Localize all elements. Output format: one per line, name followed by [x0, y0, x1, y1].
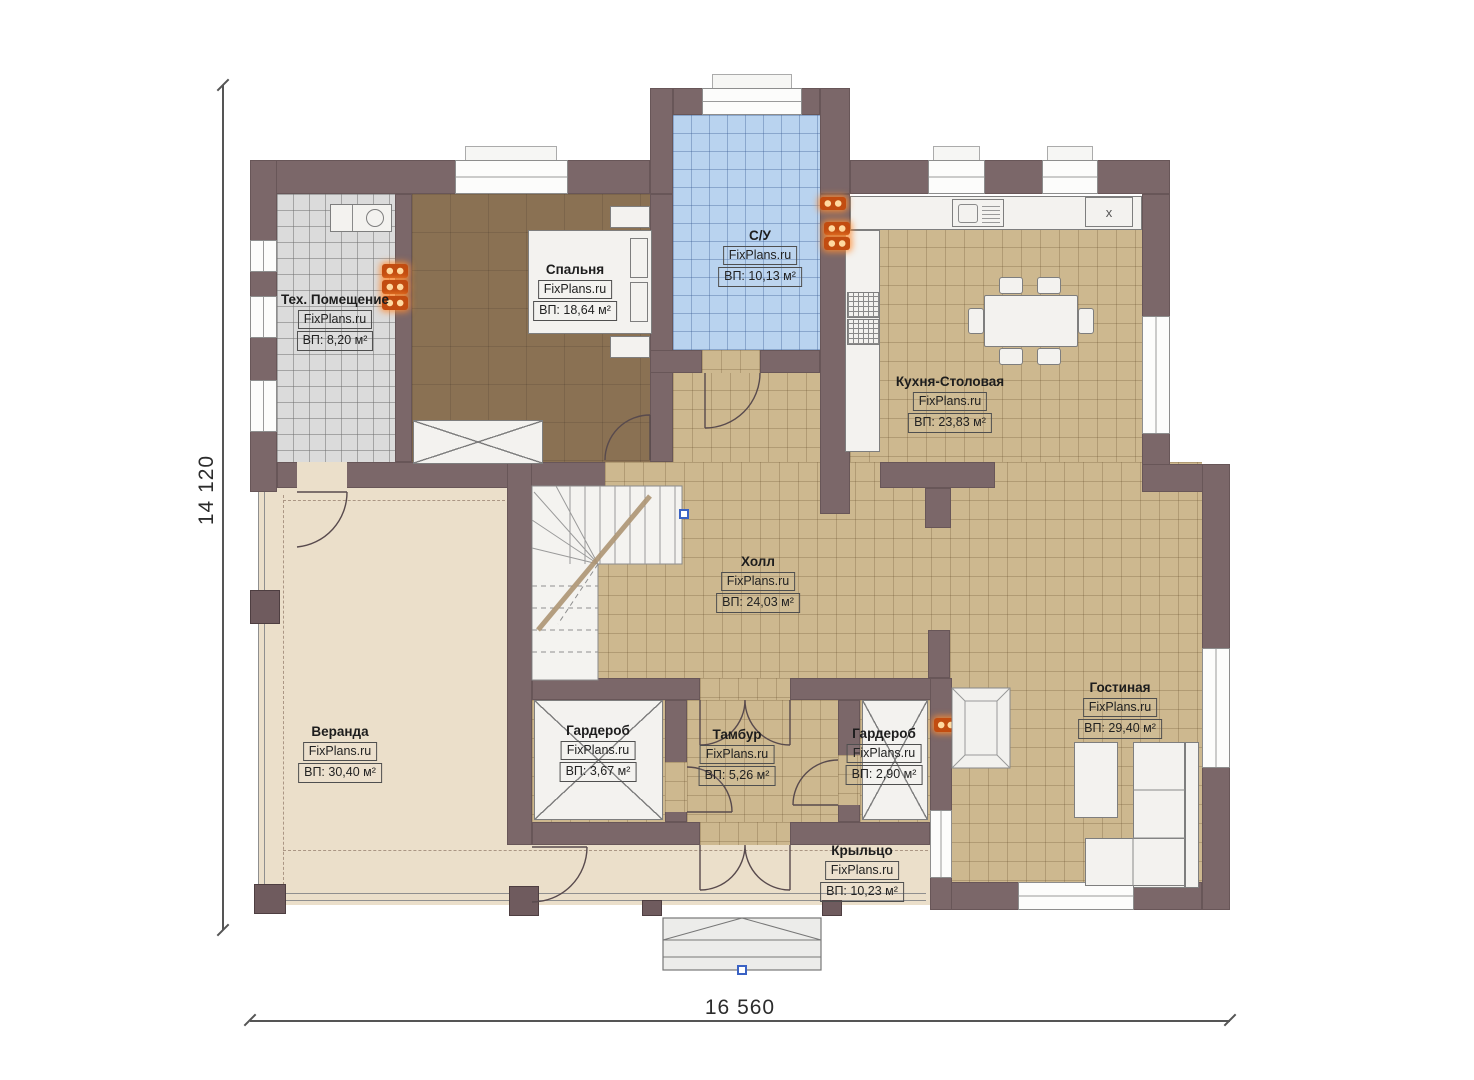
- window: [455, 160, 568, 194]
- room-title-tambour: Тамбур: [699, 727, 776, 743]
- room-area-living: ВП: 29,40 м²: [1078, 719, 1162, 739]
- room-label-tambour: Тамбур FixPlans.ru ВП: 5,26 м²: [699, 727, 776, 786]
- window: [702, 88, 802, 115]
- room-watermark-tambour: FixPlans.ru: [700, 745, 775, 765]
- wall-segment: [650, 350, 702, 373]
- appliance-x-label: x: [1106, 205, 1113, 220]
- room-label-living: Гостиная FixPlans.ru ВП: 29,40 м²: [1078, 680, 1162, 739]
- dimension-label-width: 16 560: [705, 996, 775, 1020]
- wall-segment: [507, 462, 532, 845]
- window: [1018, 882, 1134, 910]
- wall-segment: [925, 488, 951, 528]
- radiator-icon: [382, 264, 408, 278]
- wall-segment: [395, 194, 412, 462]
- room-area-hall: ВП: 24,03 м²: [716, 593, 800, 613]
- chair: [1037, 277, 1061, 294]
- dimension-line-vertical: [222, 85, 224, 930]
- veranda-post: [509, 886, 539, 916]
- dimension-label-height: 14 120: [195, 455, 219, 525]
- room-title-veranda: Веранда: [298, 724, 382, 740]
- roof-overhang-line: [283, 495, 284, 890]
- door-opening: [702, 350, 760, 373]
- window-sill: [712, 74, 792, 89]
- window: [928, 160, 985, 194]
- room-title-wardrobe-left: Гардероб: [560, 723, 637, 739]
- nightstand: [610, 206, 650, 228]
- porch-post: [642, 900, 662, 916]
- wall-segment: [820, 88, 850, 194]
- window-sill: [1047, 146, 1093, 161]
- window: [930, 810, 952, 878]
- radiator-icon: [824, 222, 850, 235]
- dimension-line-horizontal: [250, 1020, 1230, 1022]
- door-opening: [700, 678, 790, 700]
- room-area-tech: ВП: 8,20 м²: [297, 331, 374, 351]
- wall-segment: [760, 350, 820, 373]
- wall-segment: [650, 88, 673, 194]
- wall-segment: [532, 678, 700, 700]
- window: [250, 380, 277, 432]
- sink-bowl-icon: [958, 204, 978, 223]
- wall-segment: [880, 462, 995, 488]
- room-label-kitchen: Кухня-Столовая FixPlans.ru ВП: 23,83 м²: [896, 374, 1004, 433]
- room-watermark-veranda: FixPlans.ru: [303, 742, 378, 762]
- room-area-wardrobe-right: ВП: 2,90 м²: [846, 765, 923, 785]
- door-opening: [665, 762, 687, 812]
- porch-post: [822, 900, 842, 916]
- room-title-living: Гостиная: [1078, 680, 1162, 696]
- room-label-hall: Холл FixPlans.ru ВП: 24,03 м²: [716, 554, 800, 613]
- room-watermark-bathroom: FixPlans.ru: [723, 246, 798, 266]
- wall-segment: [928, 630, 950, 678]
- nightstand: [610, 336, 650, 358]
- sink-drainer-icon: [982, 204, 1000, 223]
- roof-overhang-line: [283, 500, 505, 501]
- room-watermark-porch: FixPlans.ru: [825, 861, 900, 881]
- vent-shaft-icon: [847, 319, 880, 345]
- veranda-post: [254, 884, 286, 914]
- built-in-closet: [413, 420, 543, 464]
- room-watermark-living: FixPlans.ru: [1083, 698, 1158, 718]
- room-area-porch: ВП: 10,23 м²: [820, 882, 904, 902]
- room-area-bathroom: ВП: 10,13 м²: [718, 267, 802, 287]
- wall-segment: [250, 160, 650, 194]
- room-label-wardrobe-left: Гардероб FixPlans.ru ВП: 3,67 м²: [560, 723, 637, 782]
- chair: [968, 308, 984, 334]
- room-title-hall: Холл: [716, 554, 800, 570]
- chair: [1078, 308, 1094, 334]
- window: [1142, 316, 1170, 434]
- room-watermark-hall: FixPlans.ru: [721, 572, 796, 592]
- wall-segment: [532, 822, 700, 845]
- radiator-icon: [820, 197, 846, 210]
- dining-table: [984, 295, 1078, 347]
- floor-plan: x: [0, 0, 1474, 1080]
- wall-segment: [790, 678, 950, 700]
- room-watermark-wardrobe-left: FixPlans.ru: [561, 741, 636, 761]
- room-area-kitchen: ВП: 23,83 м²: [908, 413, 992, 433]
- room-watermark-kitchen: FixPlans.ru: [913, 392, 988, 412]
- chair: [999, 277, 1023, 294]
- door-opening: [605, 462, 650, 488]
- door-opening: [297, 462, 347, 488]
- wall-segment: [850, 160, 1170, 194]
- coffee-table: [1074, 742, 1118, 818]
- room-title-bedroom: Спальня: [533, 262, 617, 278]
- room-watermark-bedroom: FixPlans.ru: [538, 280, 613, 300]
- room-label-veranda: Веранда FixPlans.ru ВП: 30,40 м²: [298, 724, 382, 783]
- wall-segment: [790, 822, 930, 845]
- window: [250, 296, 277, 338]
- wall-segment: [650, 194, 673, 462]
- room-title-wardrobe-right: Гардероб: [846, 726, 923, 742]
- window-sill: [465, 146, 557, 161]
- room-area-veranda: ВП: 30,40 м²: [298, 763, 382, 783]
- window: [250, 240, 277, 272]
- room-title-kitchen: Кухня-Столовая: [896, 374, 1004, 390]
- room-label-bathroom: С/У FixPlans.ru ВП: 10,13 м²: [718, 228, 802, 287]
- room-watermark-tech: FixPlans.ru: [298, 310, 373, 330]
- window-sill: [933, 146, 980, 161]
- room-watermark-wardrobe-right: FixPlans.ru: [847, 744, 922, 764]
- window: [1042, 160, 1098, 194]
- chair: [999, 348, 1023, 365]
- veranda-post: [250, 590, 280, 624]
- room-area-tambour: ВП: 5,26 м²: [699, 766, 776, 786]
- window: [1202, 648, 1230, 768]
- floor-veranda: [258, 488, 507, 905]
- pillow: [630, 238, 648, 278]
- radiator-icon: [934, 718, 958, 732]
- room-title-bathroom: С/У: [718, 228, 802, 244]
- room-label-tech: Тех. Помещение FixPlans.ru ВП: 8,20 м²: [281, 292, 389, 351]
- room-title-tech: Тех. Помещение: [281, 292, 389, 308]
- washer-drum-icon: [366, 209, 384, 227]
- counter-divider: [352, 205, 353, 231]
- radiator-icon: [824, 237, 850, 250]
- sofa-seat: [1085, 838, 1185, 886]
- room-title-porch: Крыльцо: [820, 843, 904, 859]
- door-opening: [700, 822, 790, 845]
- stove-appliance: x: [1085, 197, 1133, 227]
- pillow: [630, 282, 648, 322]
- vent-shaft-icon: [847, 292, 880, 318]
- room-area-wardrobe-left: ВП: 3,67 м²: [560, 762, 637, 782]
- room-label-bedroom: Спальня FixPlans.ru ВП: 18,64 м²: [533, 262, 617, 321]
- veranda-railing: [258, 492, 265, 892]
- room-area-bedroom: ВП: 18,64 м²: [533, 301, 617, 321]
- room-label-wardrobe-right: Гардероб FixPlans.ru ВП: 2,90 м²: [846, 726, 923, 785]
- sofa-back: [1185, 742, 1199, 888]
- chair: [1037, 348, 1061, 365]
- room-label-porch: Крыльцо FixPlans.ru ВП: 10,23 м²: [820, 843, 904, 902]
